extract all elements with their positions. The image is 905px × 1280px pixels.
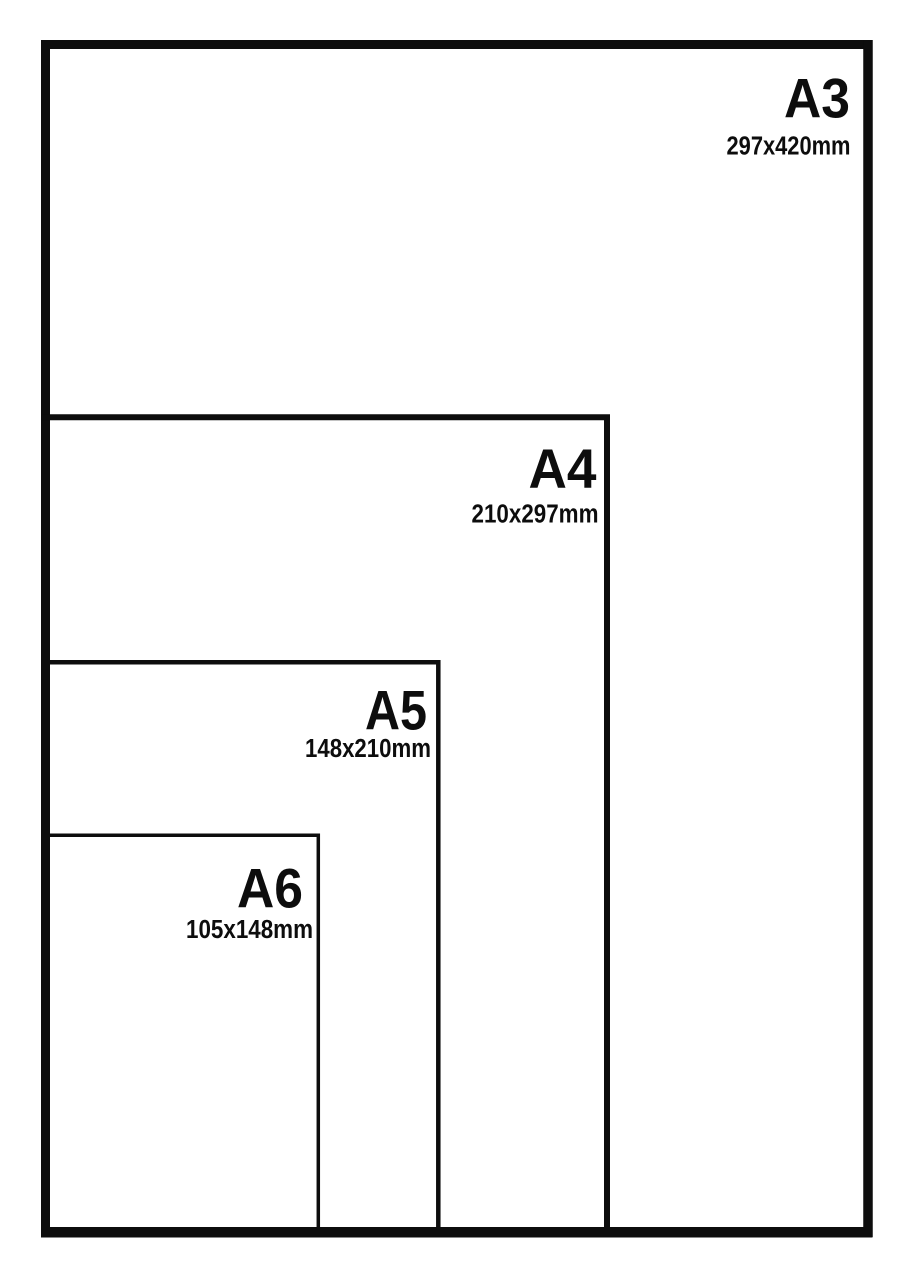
svg-text:A4: A4: [529, 437, 597, 500]
svg-text:A6: A6: [237, 857, 303, 920]
svg-text:105x148mm: 105x148mm: [186, 916, 313, 944]
svg-text:A3: A3: [784, 67, 850, 130]
svg-text:148x210mm: 148x210mm: [305, 735, 431, 763]
svg-text:A5: A5: [365, 679, 427, 742]
svg-text:210x297mm: 210x297mm: [472, 501, 599, 529]
svg-text:297x420mm: 297x420mm: [727, 133, 851, 161]
